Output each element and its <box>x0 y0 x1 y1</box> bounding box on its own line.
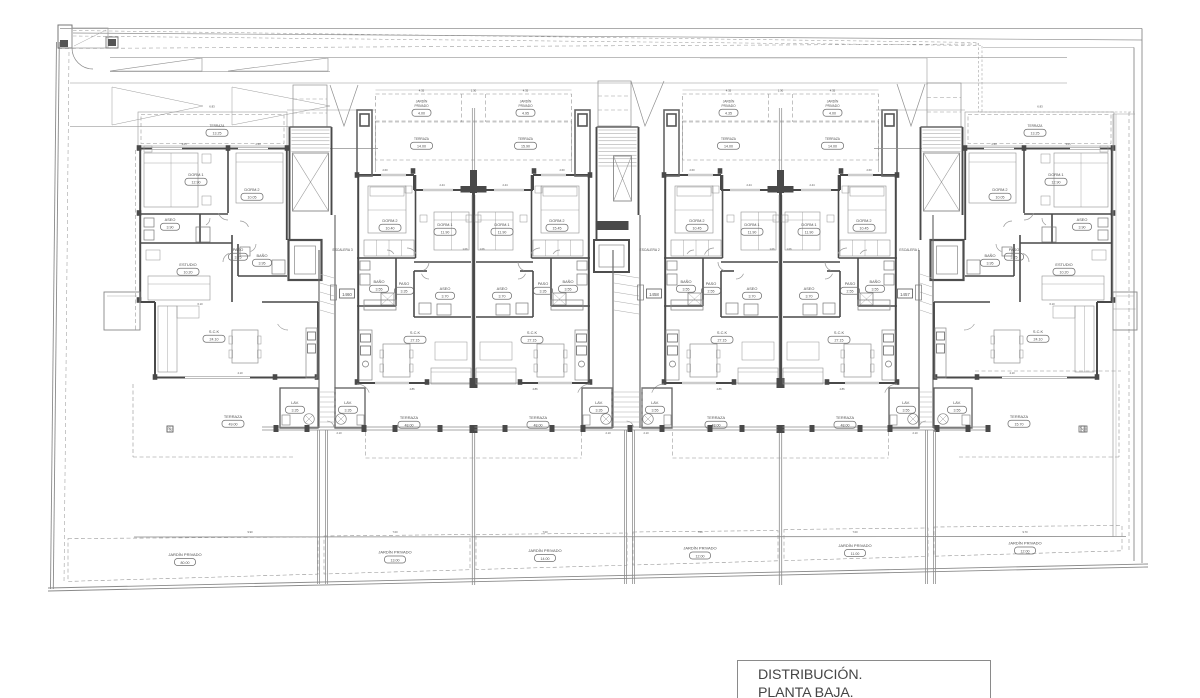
svg-text:BAÑO: BAÑO <box>869 279 880 284</box>
svg-text:4.00: 4.00 <box>829 112 836 116</box>
svg-text:7.00: 7.00 <box>852 530 858 534</box>
svg-text:6.10: 6.10 <box>197 302 203 306</box>
svg-text:2.55: 2.55 <box>708 290 715 294</box>
svg-text:12.90: 12.90 <box>192 181 201 185</box>
svg-text:PRIVADO: PRIVADO <box>721 104 736 108</box>
svg-text:DORM.1: DORM.1 <box>188 172 203 177</box>
svg-text:3.55: 3.55 <box>872 288 879 292</box>
svg-text:3.90: 3.90 <box>1079 226 1086 230</box>
svg-text:10.05: 10.05 <box>996 196 1005 200</box>
svg-text:4.86: 4.86 <box>532 387 538 391</box>
svg-text:3.70: 3.70 <box>442 295 449 299</box>
svg-text:DORM.2: DORM.2 <box>856 218 871 223</box>
svg-text:4.86: 4.86 <box>839 387 845 391</box>
svg-text:3.65: 3.65 <box>181 142 187 146</box>
svg-text:2.10: 2.10 <box>336 431 342 435</box>
svg-text:1.06: 1.06 <box>479 247 485 251</box>
svg-text:15.45: 15.45 <box>553 227 562 231</box>
svg-text:PASO: PASO <box>1009 247 1020 252</box>
svg-text:3.55: 3.55 <box>903 409 910 413</box>
svg-text:7.00: 7.00 <box>697 530 703 534</box>
svg-text:DORM.2: DORM.2 <box>382 218 397 223</box>
svg-text:DORM.1: DORM.1 <box>801 222 816 227</box>
svg-text:4.00: 4.00 <box>418 112 425 116</box>
svg-text:4.95: 4.95 <box>522 112 529 116</box>
svg-text:49.00: 49.00 <box>229 423 238 427</box>
svg-text:2.44: 2.44 <box>746 183 752 187</box>
svg-text:24.10: 24.10 <box>1034 338 1043 342</box>
svg-text:4.86: 4.86 <box>409 387 415 391</box>
svg-text:TERRAZA: TERRAZA <box>721 137 737 141</box>
svg-text:JARDÍN: JARDÍN <box>723 100 735 104</box>
svg-text:13.25: 13.25 <box>1031 132 1040 136</box>
svg-text:S.C.K: S.C.K <box>717 330 728 335</box>
svg-text:ESCALERA 1: ESCALERA 1 <box>899 248 919 252</box>
svg-text:27.15: 27.15 <box>528 339 537 343</box>
svg-text:DORM.2: DORM.2 <box>689 218 704 223</box>
svg-text:ASEO: ASEO <box>747 286 758 291</box>
svg-text:JARDÍN PRIVADO: JARDÍN PRIVADO <box>528 548 561 553</box>
svg-text:15.90: 15.90 <box>521 145 530 149</box>
svg-text:7.00: 7.00 <box>542 530 548 534</box>
svg-text:2.60: 2.60 <box>559 168 565 172</box>
svg-text:DORM.2: DORM.2 <box>549 218 564 223</box>
svg-text:12.90: 12.90 <box>1052 181 1061 185</box>
svg-text:ESCALERA 3: ESCALERA 3 <box>333 248 353 252</box>
svg-text:3.90: 3.90 <box>167 226 174 230</box>
svg-text:DORM.1: DORM.1 <box>1048 172 1063 177</box>
svg-text:JARDÍN PRIVADO: JARDÍN PRIVADO <box>1008 541 1041 546</box>
svg-text:3.95: 3.95 <box>987 262 994 266</box>
svg-text:1.30: 1.30 <box>778 89 784 93</box>
svg-text:TERRAZA: TERRAZA <box>210 124 226 128</box>
svg-text:3.55: 3.55 <box>954 409 961 413</box>
svg-text:LAV.: LAV. <box>651 400 659 405</box>
svg-text:3.70: 3.70 <box>499 295 506 299</box>
svg-text:TERRAZA: TERRAZA <box>825 137 841 141</box>
svg-text:11.90: 11.90 <box>441 231 450 235</box>
svg-text:3.95: 3.95 <box>259 262 266 266</box>
svg-text:6.83: 6.83 <box>1037 105 1043 109</box>
svg-text:BAÑO: BAÑO <box>562 279 573 284</box>
svg-text:80.00: 80.00 <box>181 561 190 565</box>
svg-text:PLANTA BAJA.: PLANTA BAJA. <box>758 685 854 698</box>
svg-text:1460: 1460 <box>342 292 352 297</box>
svg-text:14.00: 14.00 <box>724 145 733 149</box>
svg-text:10.20: 10.20 <box>1060 271 1069 275</box>
svg-text:10.45: 10.45 <box>693 227 702 231</box>
svg-text:PRIVADO: PRIVADO <box>825 104 840 108</box>
svg-text:ASEO: ASEO <box>440 286 451 291</box>
svg-text:9.90: 9.90 <box>247 530 253 534</box>
svg-text:2.44: 2.44 <box>439 183 445 187</box>
svg-text:4.10: 4.10 <box>1009 371 1015 375</box>
svg-text:ESTUDIO: ESTUDIO <box>179 262 196 267</box>
svg-text:ESTUDIO: ESTUDIO <box>1055 262 1072 267</box>
svg-text:JARDÍN PRIVADO: JARDÍN PRIVADO <box>683 546 716 551</box>
svg-text:DORM.2: DORM.2 <box>244 187 259 192</box>
svg-text:TERRAZA: TERRAZA <box>836 415 855 420</box>
svg-text:1.30: 1.30 <box>471 89 477 93</box>
svg-text:3.55: 3.55 <box>376 288 383 292</box>
svg-text:TERRAZA: TERRAZA <box>400 415 419 420</box>
svg-text:2.10: 2.10 <box>605 431 611 435</box>
svg-text:4.35: 4.35 <box>419 89 425 93</box>
svg-text:PASO: PASO <box>233 247 244 252</box>
svg-text:JARDÍN: JARDÍN <box>416 100 428 104</box>
svg-text:LAV.: LAV. <box>953 400 961 405</box>
svg-text:DORM.1: DORM.1 <box>437 222 452 227</box>
svg-text:11.00: 11.00 <box>851 552 860 556</box>
svg-text:BAÑO: BAÑO <box>373 279 384 284</box>
svg-text:TERRAZA: TERRAZA <box>1028 124 1044 128</box>
svg-text:2.44: 2.44 <box>502 183 508 187</box>
svg-text:PASO: PASO <box>399 281 410 286</box>
svg-text:ASEO: ASEO <box>804 286 815 291</box>
svg-text:3.70: 3.70 <box>749 295 756 299</box>
svg-text:2.10: 2.10 <box>643 431 649 435</box>
svg-text:JARDÍN PRIVADO: JARDÍN PRIVADO <box>168 552 201 557</box>
svg-text:DORM.1: DORM.1 <box>494 222 509 227</box>
svg-text:1.06: 1.06 <box>786 247 792 251</box>
svg-text:3.70: 3.70 <box>806 295 813 299</box>
svg-text:7.00: 7.00 <box>392 530 398 534</box>
svg-text:3.65: 3.65 <box>1065 142 1071 146</box>
svg-text:24.10: 24.10 <box>210 338 219 342</box>
svg-text:3.55: 3.55 <box>683 288 690 292</box>
svg-text:DISTRIBUCIÓN.: DISTRIBUCIÓN. <box>758 666 862 683</box>
svg-text:4.86: 4.86 <box>716 387 722 391</box>
svg-text:3.35: 3.35 <box>345 409 352 413</box>
svg-text:PRIVADO: PRIVADO <box>414 104 429 108</box>
svg-text:4.10: 4.10 <box>237 371 243 375</box>
svg-text:S.C.K: S.C.K <box>1033 329 1044 334</box>
svg-text:12.00: 12.00 <box>696 554 705 558</box>
svg-text:11.90: 11.90 <box>748 231 757 235</box>
svg-text:BAÑO: BAÑO <box>256 253 267 258</box>
svg-text:2.60: 2.60 <box>866 168 872 172</box>
svg-text:11.90: 11.90 <box>498 231 507 235</box>
svg-text:1.06: 1.06 <box>769 247 775 251</box>
svg-text:S.C.K: S.C.K <box>527 330 538 335</box>
svg-text:1.06: 1.06 <box>462 247 468 251</box>
svg-text:3.35: 3.35 <box>596 409 603 413</box>
svg-text:3.35: 3.35 <box>401 290 408 294</box>
svg-text:2.44: 2.44 <box>809 183 815 187</box>
svg-text:2.60: 2.60 <box>689 168 695 172</box>
svg-text:JARDÍN PRIVADO: JARDÍN PRIVADO <box>838 543 871 548</box>
svg-text:TERRAZA: TERRAZA <box>414 137 430 141</box>
svg-text:13.00: 13.00 <box>391 558 400 562</box>
svg-text:27.15: 27.15 <box>718 339 727 343</box>
svg-text:1457: 1457 <box>900 292 910 297</box>
svg-text:4.35: 4.35 <box>523 89 529 93</box>
svg-text:2.60: 2.60 <box>382 168 388 172</box>
svg-text:TERRAZA: TERRAZA <box>529 415 548 420</box>
svg-text:JARDÍN: JARDÍN <box>520 100 532 104</box>
svg-text:10.40: 10.40 <box>386 227 395 231</box>
svg-text:JARDÍN: JARDÍN <box>827 100 839 104</box>
svg-text:4.35: 4.35 <box>726 89 732 93</box>
svg-text:3.35: 3.35 <box>540 290 547 294</box>
svg-text:12.00: 12.00 <box>1021 549 1030 553</box>
svg-text:13.25: 13.25 <box>213 132 222 136</box>
svg-text:TERRAZA: TERRAZA <box>224 414 243 419</box>
svg-text:DORM.2: DORM.2 <box>992 187 1007 192</box>
svg-text:ASEO: ASEO <box>1077 217 1088 222</box>
svg-text:11.90: 11.90 <box>805 231 814 235</box>
svg-text:3.55: 3.55 <box>565 288 572 292</box>
svg-text:27.15: 27.15 <box>411 339 420 343</box>
svg-text:LAV.: LAV. <box>595 400 603 405</box>
svg-text:TERRAZA: TERRAZA <box>518 137 534 141</box>
svg-text:2.43: 2.43 <box>255 142 261 146</box>
svg-text:ESCALERA 2: ESCALERA 2 <box>640 248 660 252</box>
svg-text:ASEO: ASEO <box>497 286 508 291</box>
svg-text:10.05: 10.05 <box>248 196 257 200</box>
svg-text:10.20: 10.20 <box>184 271 193 275</box>
svg-text:PASO: PASO <box>538 281 549 286</box>
svg-text:PASO: PASO <box>845 281 856 286</box>
svg-text:S.C.K: S.C.K <box>410 330 421 335</box>
svg-text:10.45: 10.45 <box>860 227 869 231</box>
svg-text:9.70: 9.70 <box>1022 530 1028 534</box>
svg-text:14.00: 14.00 <box>541 557 550 561</box>
svg-text:1458: 1458 <box>649 292 659 297</box>
svg-text:DORM.1: DORM.1 <box>744 222 759 227</box>
svg-text:ASEO: ASEO <box>165 217 176 222</box>
svg-text:LAV.: LAV. <box>344 400 352 405</box>
svg-text:PRIVADO: PRIVADO <box>518 104 533 108</box>
svg-text:2.43: 2.43 <box>991 142 997 146</box>
svg-text:4.35: 4.35 <box>830 89 836 93</box>
svg-text:3.55: 3.55 <box>652 409 659 413</box>
svg-text:PASO: PASO <box>706 281 717 286</box>
svg-text:2.10: 2.10 <box>912 431 918 435</box>
svg-text:14.00: 14.00 <box>417 145 426 149</box>
svg-text:S.C.K: S.C.K <box>834 330 845 335</box>
svg-text:JARDÍN PRIVADO: JARDÍN PRIVADO <box>378 550 411 555</box>
svg-text:27.15: 27.15 <box>835 339 844 343</box>
svg-text:6.10: 6.10 <box>1049 302 1055 306</box>
svg-text:LAV.: LAV. <box>902 400 910 405</box>
svg-text:BAÑO: BAÑO <box>680 279 691 284</box>
svg-text:TERRAZA: TERRAZA <box>1010 414 1029 419</box>
svg-text:S.C.K: S.C.K <box>209 329 220 334</box>
svg-text:BAÑO: BAÑO <box>984 253 995 258</box>
svg-text:4.35: 4.35 <box>725 112 732 116</box>
svg-text:15.70: 15.70 <box>1015 423 1024 427</box>
svg-text:2.55: 2.55 <box>847 290 854 294</box>
svg-text:LAV.: LAV. <box>291 400 299 405</box>
svg-text:TERRAZA: TERRAZA <box>707 415 726 420</box>
svg-text:14.00: 14.00 <box>828 145 837 149</box>
svg-text:3.35: 3.35 <box>292 409 299 413</box>
svg-text:6.83: 6.83 <box>209 105 215 109</box>
